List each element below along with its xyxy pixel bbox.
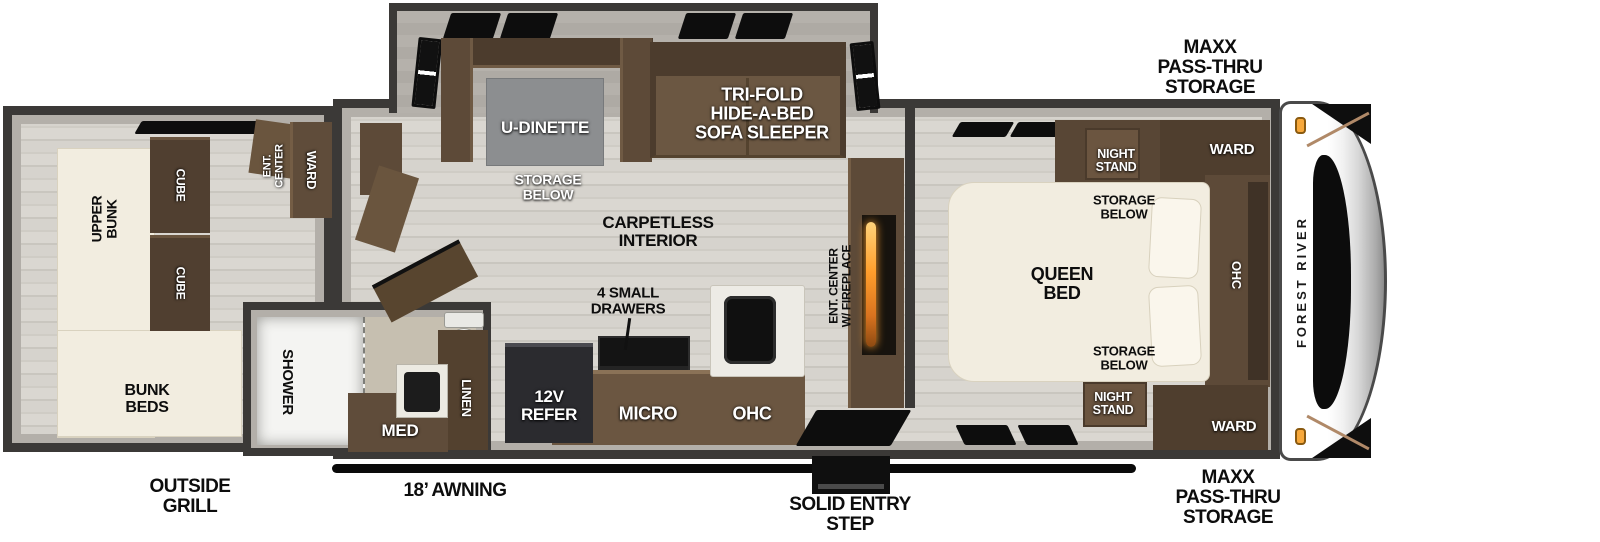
toilet	[444, 312, 484, 328]
slideout-window-2b	[735, 13, 793, 39]
label-sofa: TRI-FOLD HIDE-A-BED SOFA SLEEPER	[695, 86, 829, 143]
entry-step-tread	[818, 484, 884, 489]
label-carpetless: CARPETLESS INTERIOR	[602, 214, 713, 250]
bedroom-bottom-window-b	[1017, 425, 1078, 445]
brand-logo-text: FOREST RIVER	[1295, 216, 1309, 348]
kitchen-sink	[724, 296, 776, 364]
bedroom-bottom-window-a	[955, 425, 1016, 445]
awning-bar	[332, 464, 1136, 473]
bed-pillow-bottom	[1148, 285, 1202, 368]
bed-pillow-top	[1148, 197, 1202, 280]
label-night-stand-top: NIGHT STAND	[1096, 148, 1137, 174]
label-storage-below-bottom: STORAGE BELOW	[1093, 344, 1155, 371]
label-med: MED	[382, 422, 419, 440]
label-shower: SHOWER	[279, 349, 295, 415]
dinette-bench-left	[441, 38, 473, 162]
bath-sink	[404, 372, 440, 412]
label-micro: MICRO	[619, 405, 678, 424]
bunkroom-tv	[134, 121, 270, 134]
bedroom-top-window-a	[952, 122, 1015, 137]
label-refrigerator: 12V REFER	[521, 388, 577, 424]
label-ward-top: WARD	[1210, 142, 1255, 158]
cap-marker-light-bottom	[1295, 428, 1306, 445]
label-maxx-storage-bottom: MAXX PASS-THRU STORAGE	[1176, 468, 1281, 528]
floorplan: FOREST RIVER MAXX PASS-THRU STORAGE MAXX…	[0, 0, 1600, 542]
label-outside-grill: OUTSIDE GRILL	[150, 477, 231, 517]
label-cube-2: CUBE	[174, 267, 187, 300]
label-maxx-storage-top: MAXX PASS-THRU STORAGE	[1158, 38, 1263, 98]
label-u-dinette: U-DINETTE	[501, 119, 589, 137]
label-rear-ward: WARD	[304, 151, 318, 190]
label-storage-below-top: STORAGE BELOW	[1093, 193, 1155, 220]
label-rear-ent-center: ENT. CENTER	[262, 144, 285, 187]
label-night-stand-bottom: NIGHT STAND	[1093, 391, 1134, 417]
label-ent-center-fireplace: ENT. CENTER W/ FIREPLACE	[827, 245, 852, 327]
label-upper-bunk: UPPER BUNK	[89, 196, 118, 243]
label-awning: 18’ AWNING	[403, 481, 506, 501]
fireplace-flame	[866, 222, 876, 347]
sofa-back	[650, 42, 846, 78]
kitchen-drawers-cooktop	[598, 336, 690, 374]
label-drawers: 4 SMALL DRAWERS	[591, 285, 666, 317]
label-kitchen-ohc: OHC	[732, 405, 771, 424]
dinette-bench-right	[620, 38, 652, 162]
slideout-window-1a	[443, 13, 501, 39]
label-ward-bottom: WARD	[1212, 419, 1257, 435]
front-cabinet-inner	[1248, 182, 1268, 380]
cap-marker-light-top	[1295, 117, 1306, 134]
bedroom-partition-wall	[905, 108, 915, 408]
label-cube-1: CUBE	[174, 169, 187, 202]
label-bedroom-ohc: OHC	[1229, 261, 1243, 289]
label-queen-bed: QUEEN BED	[1031, 265, 1094, 303]
label-bunk-beds: BUNK BEDS	[124, 383, 169, 417]
label-entry-step: SOLID ENTRY STEP	[789, 495, 911, 535]
slideout-window-2a	[678, 13, 736, 39]
slideout-window-1b	[500, 13, 558, 39]
label-dinette-storage: STORAGE BELOW	[515, 172, 582, 201]
label-linen: LINEN	[459, 379, 473, 417]
